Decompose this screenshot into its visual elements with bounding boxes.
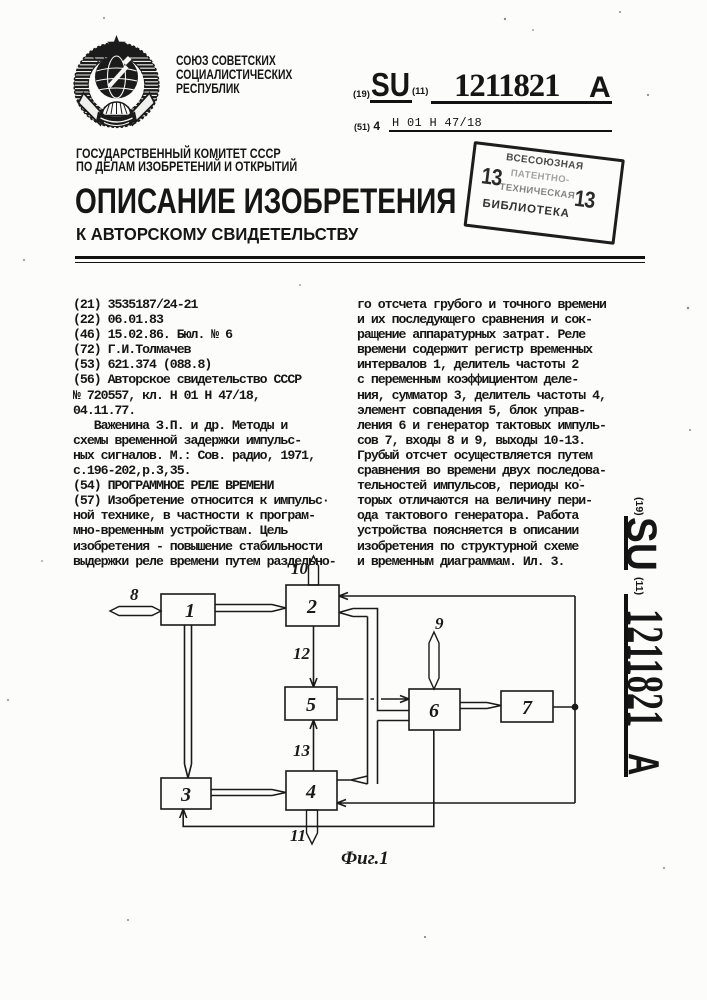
svg-text:9: 9 [435,614,444,633]
svg-text:Фиг.1: Фиг.1 [341,848,389,869]
svg-text:13: 13 [293,741,311,760]
svg-text:8: 8 [130,585,139,604]
svg-text:6: 6 [429,700,439,722]
svg-text:11: 11 [290,826,306,845]
svg-text:12: 12 [293,644,311,663]
svg-text:7: 7 [522,697,533,719]
svg-text:1: 1 [185,600,195,622]
svg-text:5: 5 [306,694,316,716]
svg-text:2: 2 [306,596,317,618]
svg-text:4: 4 [305,781,316,803]
svg-text:3: 3 [180,784,191,806]
svg-text:10: 10 [291,559,309,578]
